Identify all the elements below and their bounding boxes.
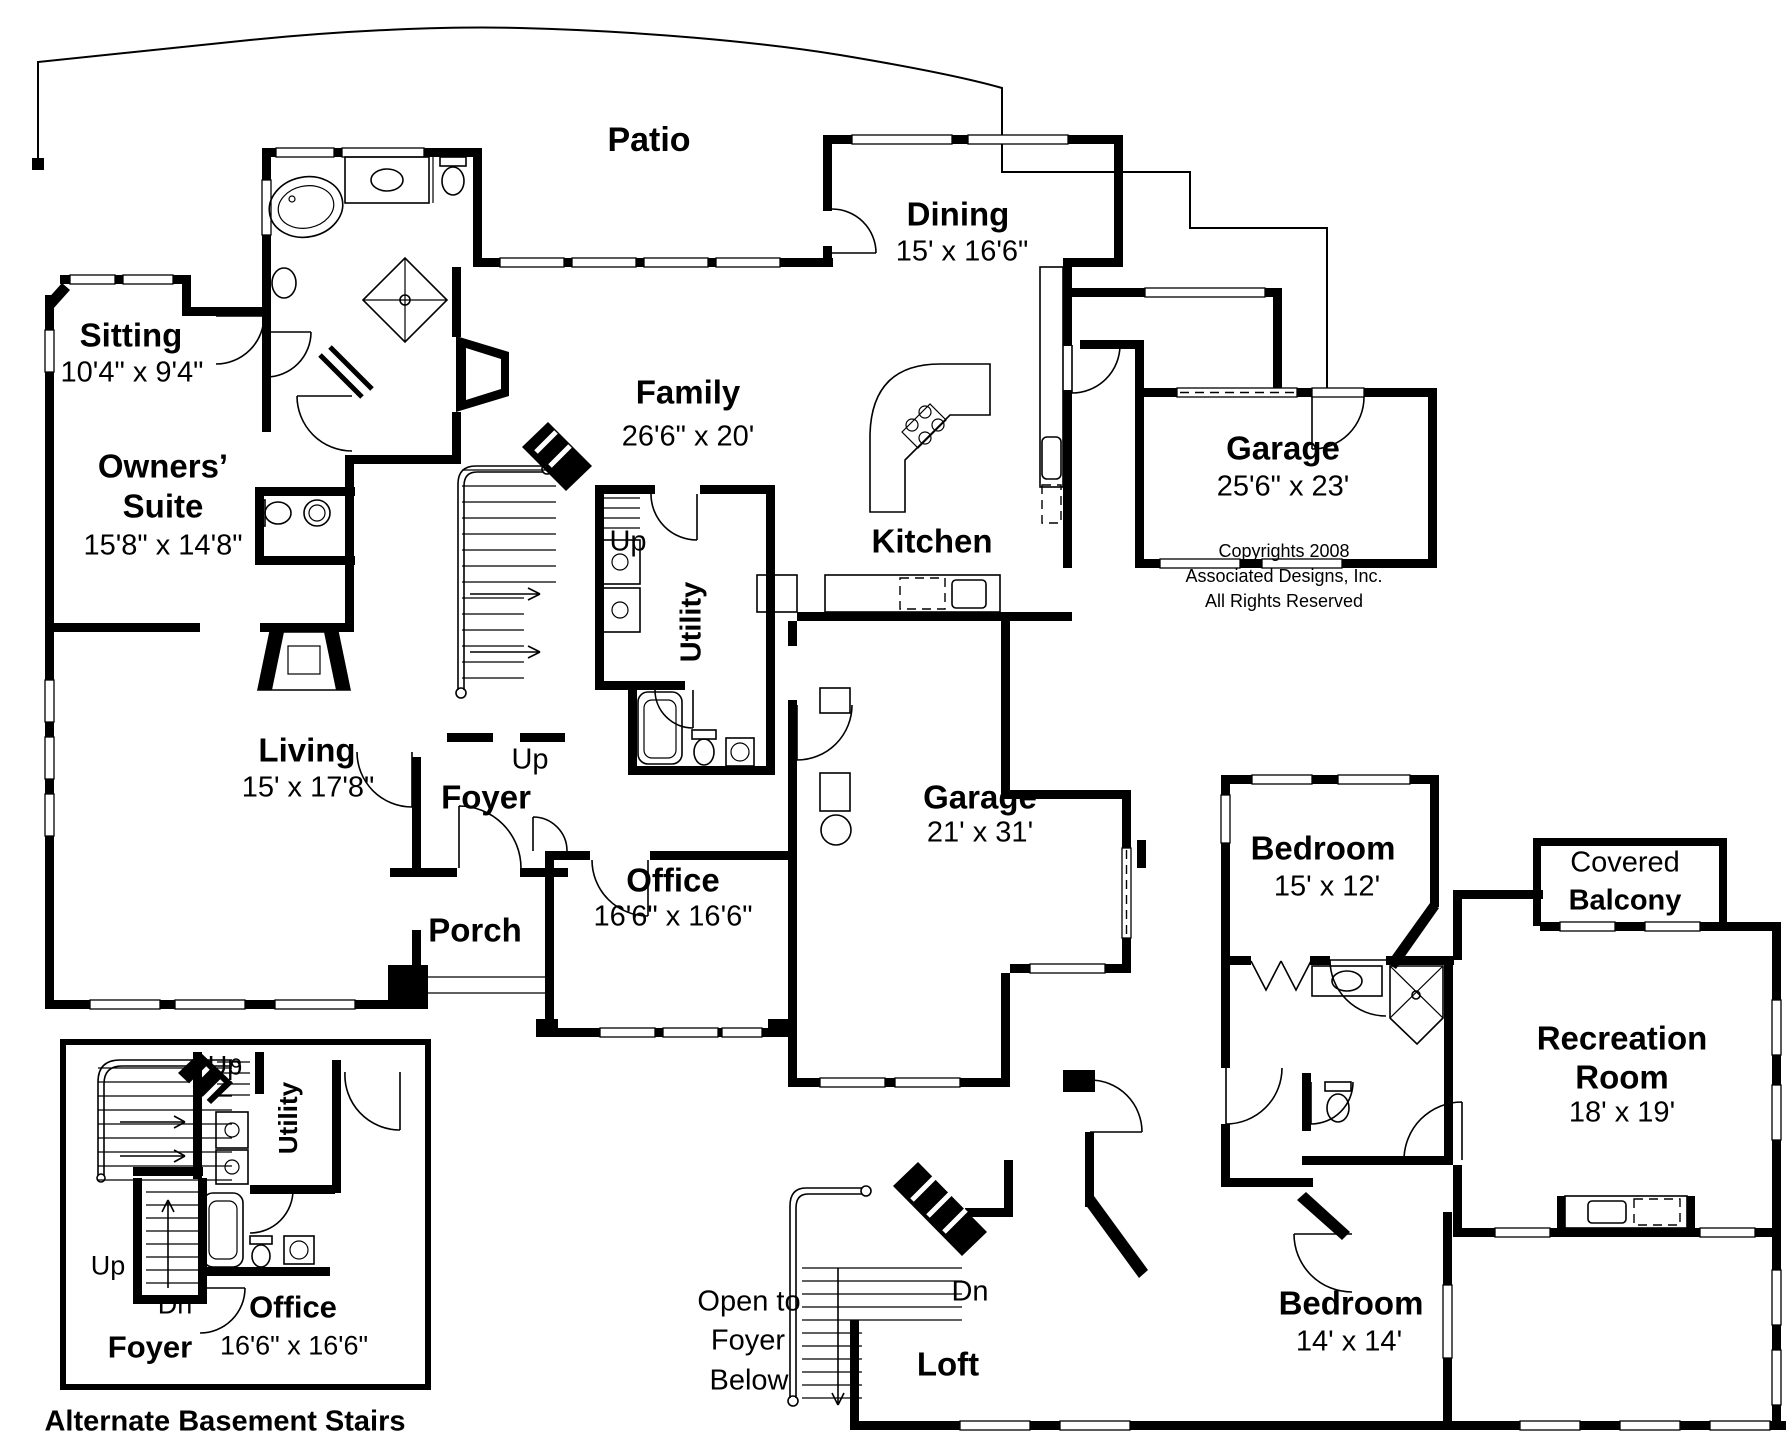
garage-rear-dims: 25'6" x 23': [1217, 473, 1350, 502]
garage-main-label: Garage: [923, 781, 1037, 814]
patio-label: Patio: [607, 123, 690, 157]
inset-office-dims: 16'6" x 16'6": [220, 1333, 368, 1360]
dining-label: Dining: [907, 198, 1010, 231]
office-label: Office: [626, 864, 720, 897]
garage-main-dims: 21' x 31': [927, 819, 1033, 848]
bedroom-front-dims: 15' x 12': [1274, 873, 1380, 902]
upper-bath-fixtures: [1312, 966, 1443, 1122]
property-line: [32, 28, 1327, 393]
main-stairs: [456, 422, 592, 698]
floor-plan-page: Patio Dining 15' x 16'6" Sitting 10'4" x…: [0, 0, 1786, 1439]
loft-label: Loft: [917, 1348, 979, 1381]
balcony-label-line2: Balcony: [1569, 887, 1682, 916]
utility-fixtures: [600, 498, 640, 632]
recreation-dims: 18' x 19': [1569, 1099, 1675, 1128]
family-fireplace: [456, 336, 509, 412]
copyright-line2: Associated Designs, Inc.: [1185, 567, 1382, 585]
sitting-dims: 10'4" x 9'4": [61, 359, 204, 388]
open-to-foyer-line2: Foyer: [711, 1327, 785, 1356]
bedroom-front-label: Bedroom: [1251, 832, 1396, 865]
family-label: Family: [636, 376, 741, 409]
second-floor-doors: [1090, 960, 1462, 1292]
open-to-foyer-line1: Open to: [697, 1288, 800, 1317]
inset-foyer-label: Foyer: [108, 1332, 192, 1363]
utility-label: Utility: [678, 582, 707, 663]
living-label: Living: [258, 734, 355, 767]
recreation-label-line1: Recreation: [1537, 1022, 1708, 1055]
kitchen-fixtures: [757, 267, 1063, 612]
sitting-label: Sitting: [80, 319, 183, 352]
owners-suite-label-line2: Suite: [123, 490, 204, 523]
porch-label: Porch: [428, 914, 522, 947]
garage-fixtures: [820, 688, 851, 845]
copyright-line1: Copyrights 2008: [1218, 542, 1349, 560]
family-dims: 26'6" x 20': [622, 423, 755, 452]
garage-rear-label: Garage: [1226, 432, 1340, 465]
rec-room-kitchenette: [1565, 1196, 1687, 1228]
inset-utility-label: Utility: [275, 1082, 301, 1154]
floor-plan-canvas: [0, 0, 1786, 1439]
owners-suite-dims: 15'8" x 14'8": [83, 532, 242, 561]
inset-up-side-label: Up: [91, 1253, 126, 1280]
balcony-label-line1: Covered: [1570, 849, 1680, 878]
foyer-up-label: Up: [511, 746, 548, 775]
inset-office-label: Office: [249, 1292, 337, 1323]
office-dims: 16'6" x 16'6": [593, 903, 752, 932]
stairs-dn-label: Dn: [951, 1278, 988, 1307]
foyer-label: Foyer: [441, 781, 531, 814]
kitchen-label: Kitchen: [871, 525, 992, 558]
stairs-up-label: Up: [609, 528, 646, 557]
living-dims: 15' x 17'8": [242, 774, 375, 803]
open-to-foyer-line3: Below: [710, 1367, 789, 1396]
inset-caption: Alternate Basement Stairs: [44, 1408, 405, 1437]
dining-dims: 15' x 16'6": [896, 238, 1029, 267]
owners-suite-label-line1: Owners’: [98, 450, 228, 483]
inset-dn-label: Dn: [158, 1292, 193, 1319]
hall-bath-fixtures: [638, 692, 754, 766]
bedroom-rear-label: Bedroom: [1279, 1287, 1424, 1320]
living-fireplace: [258, 632, 350, 690]
bedroom-rear-dims: 14' x 14': [1296, 1328, 1402, 1357]
master-bath-fixtures: [256, 157, 466, 526]
recreation-label-line2: Room: [1575, 1061, 1669, 1094]
inset-up-top-label: Up: [208, 1053, 243, 1080]
copyright-line3: All Rights Reserved: [1205, 592, 1363, 610]
